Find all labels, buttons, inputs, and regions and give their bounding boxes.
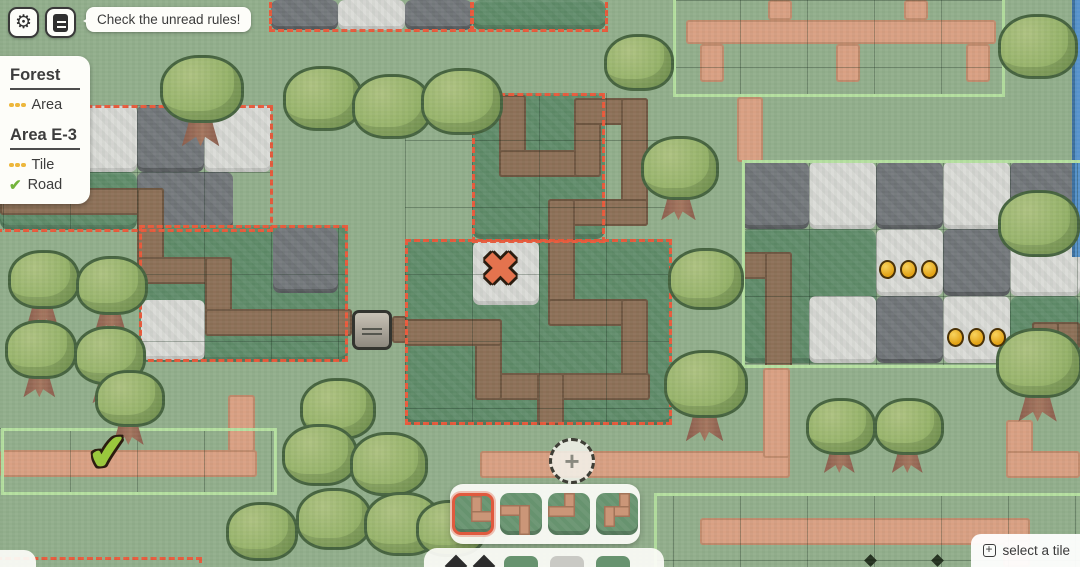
coin-icon [989,328,1006,347]
tree [998,14,1072,103]
tree-canopy [95,370,165,427]
tree [874,398,938,475]
road-segment [700,44,724,82]
tree [604,34,668,111]
tree [668,248,738,332]
road-segment [405,319,502,346]
tree-canopy [5,320,77,379]
tree-canopy [998,190,1080,257]
tree-canopy [8,250,80,309]
tile-thumb[interactable] [504,556,538,567]
tree-canopy [641,136,719,200]
tree-canopy [996,328,1080,398]
road-segment [763,368,790,458]
settings-button[interactable]: ⚙ [8,7,39,38]
stone-tile-light [809,296,876,363]
road-segment [836,44,860,82]
grid-node-diamond [931,554,944,567]
rule-item-tile[interactable]: Tile [0,155,90,175]
grid-node-diamond [864,554,877,567]
tile-option-road-top-left[interactable] [548,493,590,535]
rule-item-area[interactable]: Area [0,95,90,115]
stone-tile-dark [742,162,809,229]
divider [10,88,80,90]
secondary-toolbar [424,548,664,567]
tree [664,350,742,444]
road-segment [768,0,792,20]
stone-tile-dark [271,0,338,30]
tree [296,488,366,567]
rule-item-road[interactable]: ✔ Road [0,175,90,195]
tile-road-segment [471,511,494,522]
rule-item-label: Tile [32,157,55,173]
tree [352,74,426,163]
tree [996,328,1076,424]
tree [806,398,870,475]
rules-section-title: Forest [0,63,90,85]
unread-rules-tooltip: Check the unread rules! [86,7,251,32]
sign-text-lines [362,325,382,335]
tree [5,320,71,399]
tree-canopy [160,55,244,123]
tree-canopy [352,74,432,139]
dots-icon [9,103,26,108]
x-marker: ✖ [482,248,519,292]
rule-item-label: Area [32,97,63,113]
tile-road-segment [548,506,575,517]
stone-tile-dark [876,162,943,229]
nav-diamond-icon[interactable] [445,555,468,567]
road-segment [205,309,352,336]
tree-canopy [806,398,876,455]
tree-canopy [421,68,503,135]
stone-tile-dark [405,0,472,30]
tree [76,256,142,335]
coin-cluster [879,260,938,279]
tree-canopy [76,256,148,315]
rules-section-title: Area E-3 [0,123,90,145]
road-segment [737,97,763,162]
tree [641,136,713,222]
road-segment [228,395,255,452]
tile-option-road-top-right[interactable] [452,493,494,535]
tree-canopy [664,350,748,418]
check-icon: ✔ [9,178,22,193]
tree [998,190,1074,281]
road-segment [904,0,928,20]
tree [8,250,74,329]
stone-tile-dark [273,228,338,293]
hint-label: select a tile [1002,543,1070,558]
divider [10,148,80,150]
tree-canopy [668,248,744,310]
tile-option-road-top-hook[interactable] [596,493,638,535]
road-segment [966,44,990,82]
road-segment [480,451,790,478]
rules-book-icon [53,14,68,32]
rules-button[interactable] [45,7,76,38]
coin-icon [900,260,917,279]
coin-icon [879,260,896,279]
tile-option-road-left-bottom[interactable] [500,493,542,535]
gear-icon: ⚙ [15,13,32,32]
game-map: ✖✔+ ⚙ Check the unread rules! Forest Are… [0,0,1080,567]
corner-panel [0,550,36,567]
tree-canopy [283,66,363,131]
tree-canopy [604,34,674,91]
tree [160,55,238,149]
tree [283,66,357,155]
add-tile-button[interactable]: + [549,438,595,484]
check-marker: ✔ [86,428,131,480]
coin-icon [947,328,964,347]
road-segment [537,373,564,425]
stone-tile-light [809,162,876,229]
select-a-tile-hint: select a tile [971,534,1080,567]
select-cursor-icon [983,544,996,557]
rule-item-label: Road [28,177,63,193]
tile-selector-panel [450,484,640,544]
tree-canopy [282,424,358,486]
road-segment [1006,451,1080,478]
tree [226,502,292,567]
tree-canopy [296,488,372,550]
tree-canopy [874,398,944,455]
area-grass[interactable] [472,0,606,30]
sign-post [352,310,392,350]
road-segment [686,20,996,44]
road-segment [765,252,792,368]
stone-tile-light [141,300,205,360]
tree-canopy [350,432,428,496]
dots-icon [9,163,26,168]
tree-canopy [226,502,298,561]
toolbar-button[interactable] [550,556,584,567]
stone-tile-light [338,0,405,30]
rules-panel: Forest Area Area E-3 Tile ✔ Road [0,56,90,204]
tile-thumb[interactable] [596,556,630,567]
nav-diamond-icon[interactable] [473,555,496,567]
tree-canopy [998,14,1078,79]
tree [421,68,497,159]
coin-icon [921,260,938,279]
coin-icon [968,328,985,347]
coin-cluster [947,328,1006,347]
tile-road-segment [604,506,615,527]
tile-road-segment [519,505,530,535]
stone-tile-dark [876,296,943,363]
